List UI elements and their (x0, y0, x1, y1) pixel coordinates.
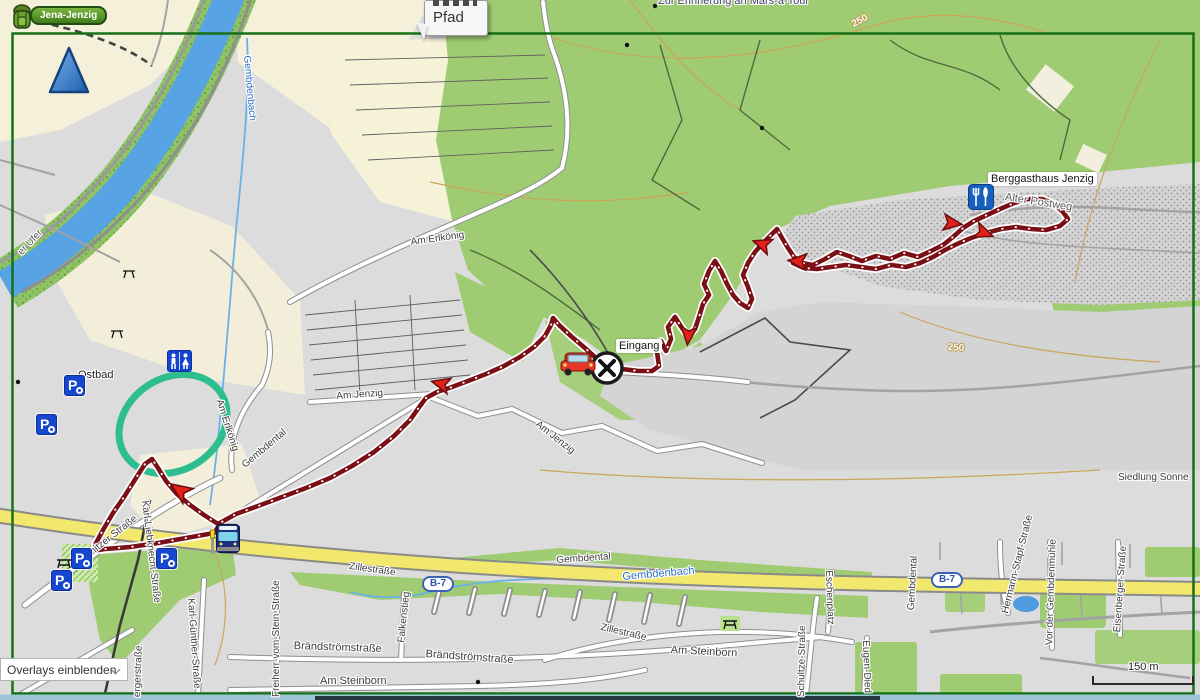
picnic-icon (720, 616, 740, 636)
parking-icon: P (36, 414, 57, 435)
parking-disc-icon (76, 387, 83, 394)
parking-disc-icon (168, 560, 175, 567)
scale-bar (1092, 676, 1194, 685)
map-viewport[interactable]: Zur Erinnerung an Mars-a-Tour Am Erlköni… (0, 0, 1200, 700)
parking-disc-icon (48, 426, 55, 433)
picnic-icon (122, 266, 136, 284)
pond (1013, 596, 1039, 612)
restaurant-icon (968, 184, 994, 215)
poi-label-berggasthaus: Berggasthaus Jenzig (988, 172, 1097, 186)
wc-icon (167, 350, 192, 377)
poi-label-eingang: Eingang (616, 339, 662, 353)
b7-badge-left: B-7 (422, 576, 454, 592)
map-tooltip: Pfad (424, 0, 488, 36)
bottom-strip (0, 695, 1200, 700)
scale-label: 150 m (1128, 661, 1159, 673)
picnic-icon (110, 326, 124, 344)
parking-icon: P (71, 548, 92, 569)
north-arrow-icon (46, 44, 92, 101)
bus-stop-icon (210, 522, 240, 561)
route-name-badge[interactable]: Jena-Jenzig (30, 6, 107, 25)
parking-icon: P (64, 375, 85, 396)
overlays-dropdown-label: Overlays einblenden (7, 663, 116, 677)
car-icon (559, 350, 597, 383)
picnic-icon (56, 556, 72, 574)
overlays-dropdown[interactable]: Overlays einblenden (0, 658, 128, 681)
tooltip-text: Pfad (433, 9, 464, 26)
parking-disc-icon (63, 582, 70, 589)
parking-icon: P (156, 548, 177, 569)
b7-badge-right: B-7 (931, 572, 963, 588)
tooltip-clipped-line (433, 0, 477, 6)
parking-disc-icon (83, 560, 90, 567)
